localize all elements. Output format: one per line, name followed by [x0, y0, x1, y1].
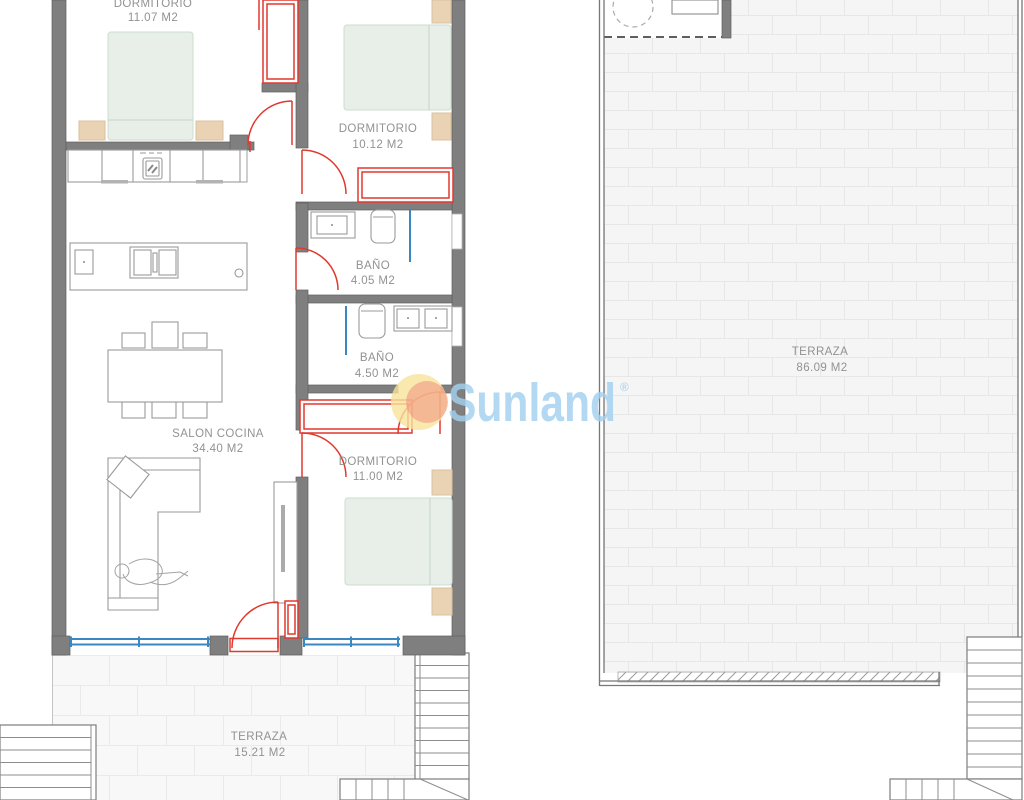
tv-unit [274, 482, 297, 603]
wall-left-outer [52, 0, 66, 655]
utility-closet [604, 0, 731, 38]
watermark: Sunland ® [391, 373, 629, 433]
stairs-bottom-left [0, 725, 96, 800]
closet-wall [722, 0, 731, 38]
bath1-wall-niche [452, 214, 462, 249]
label-dormitorio2-area: 10.12 M2 [352, 139, 403, 151]
terrace-right [600, 0, 1023, 686]
dining-set [108, 322, 222, 418]
dining-table-icon [108, 350, 222, 402]
nightstand-icon [79, 121, 105, 140]
tv-icon [281, 505, 285, 572]
bed-icon [345, 498, 452, 585]
label-bano1-area: 4.05 M2 [351, 275, 395, 287]
wall-bedroom1-kitchen [66, 142, 254, 150]
label-dormitorio1-area: 11.07 M2 [128, 12, 178, 24]
nightstand-icon [196, 121, 223, 140]
kitchen-island [70, 243, 247, 290]
label-dormitorio3-name: DORMITORIO [339, 456, 418, 468]
label-terraza2-name: TERRAZA [792, 346, 848, 358]
chair-icon [183, 333, 207, 348]
chair-icon [152, 402, 176, 418]
window [70, 637, 210, 648]
label-salon-name: SALON COCINA [172, 428, 264, 440]
chair-icon [122, 402, 145, 418]
label-terraza1-area: 15.21 M2 [234, 747, 285, 759]
label-terraza2-area: 86.09 M2 [796, 362, 847, 374]
sun-inner-icon [406, 381, 448, 423]
door-threshold [230, 639, 278, 652]
label-terraza1-name: TERRAZA [231, 731, 287, 743]
label-bano2-area: 4.50 M2 [355, 368, 399, 380]
terrace-bottom [52, 655, 418, 800]
wall-bath2-bottom [296, 385, 398, 393]
cabinet-icon [285, 601, 298, 638]
bath2-wall-niche [452, 307, 462, 346]
label-dormitorio3-area: 11.00 M2 [353, 471, 403, 483]
bed-icon [344, 25, 451, 110]
chair-icon [183, 402, 207, 418]
chair-icon [122, 333, 145, 348]
window [303, 637, 400, 648]
brand-wordmark: Sunland [448, 373, 616, 433]
wall-bath1-bath2 [296, 295, 452, 303]
label-bano1-name: BAÑO [356, 259, 390, 272]
nightstand-icon [432, 588, 452, 615]
label-dormitorio2-name: DORMITORIO [339, 123, 418, 135]
label-dormitorio1-name: DORMITORIO [114, 0, 193, 10]
wardrobe-icon [358, 168, 453, 202]
bed-icon [108, 32, 193, 140]
kitchen-counter [68, 150, 240, 184]
label-bano2-name: BAÑO [360, 351, 394, 364]
nightstand-icon [432, 0, 451, 23]
nightstand-icon [432, 470, 452, 495]
terrace-right-floor [604, 0, 1018, 673]
floor-plan-canvas: DORMITORIO 11.07 M2 DORMITORIO 10.12 M2 … [0, 0, 1024, 800]
wardrobe-icon [263, 0, 298, 83]
appliance-icon [672, 0, 718, 14]
registered-mark: ® [620, 380, 629, 394]
label-salon-area: 34.40 M2 [192, 443, 243, 455]
nightstand-icon [432, 113, 451, 140]
terrace-bottom-floor [52, 655, 418, 800]
chair-icon [152, 322, 178, 348]
floor-plan-drawing: DORMITORIO 11.07 M2 DORMITORIO 10.12 M2 … [0, 0, 1024, 800]
wall-bath1-top [296, 202, 452, 210]
